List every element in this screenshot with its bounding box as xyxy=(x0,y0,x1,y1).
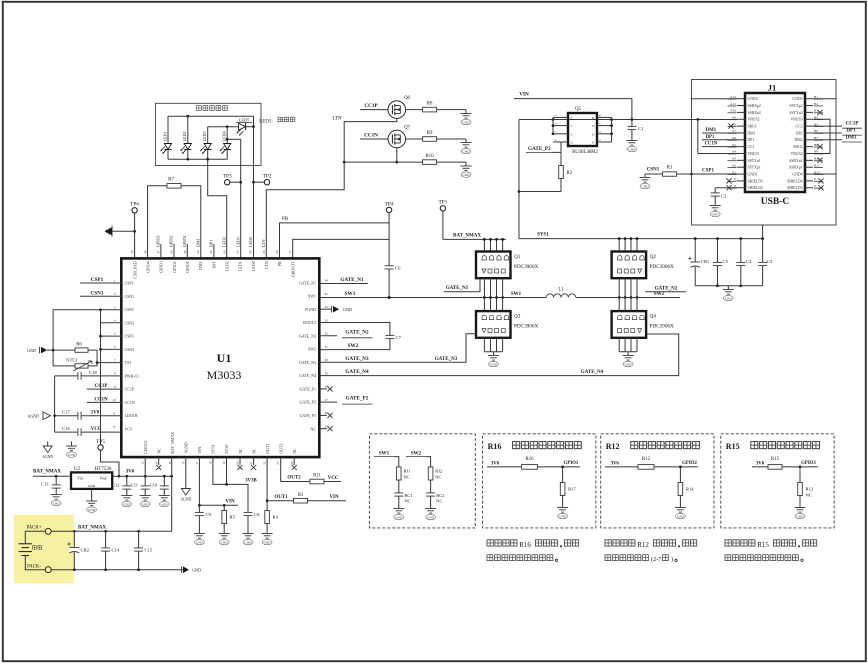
svg-text:NC: NC xyxy=(806,493,812,498)
svg-text:L1: L1 xyxy=(558,288,564,293)
svg-text:(2-7: (2-7 xyxy=(651,556,661,563)
svg-text:C18: C18 xyxy=(89,370,97,375)
svg-text:SSTXp2: SSTXp2 xyxy=(789,104,802,108)
svg-text:RC2: RC2 xyxy=(436,493,444,498)
svg-text:PACK-: PACK- xyxy=(27,564,41,569)
svg-text:17: 17 xyxy=(195,461,199,465)
svg-text:GND: GND xyxy=(343,307,352,312)
svg-text:NC: NC xyxy=(310,426,316,431)
svg-text:NC: NC xyxy=(435,474,441,479)
svg-text:44: 44 xyxy=(196,250,200,254)
svg-text:GND: GND xyxy=(559,514,567,518)
svg-text:0: 0 xyxy=(734,177,736,181)
svg-text:GND: GND xyxy=(712,212,720,216)
svg-text:DP1: DP1 xyxy=(706,135,715,140)
svg-text:SYS1: SYS1 xyxy=(211,444,216,453)
svg-text:11: 11 xyxy=(112,411,116,415)
svg-text:GPIO2: GPIO2 xyxy=(682,461,697,466)
svg-text:CSN2: CSN2 xyxy=(125,320,135,325)
svg-text:GPIO2: GPIO2 xyxy=(169,235,174,247)
svg-text:R11: R11 xyxy=(313,474,321,479)
svg-text:45: 45 xyxy=(183,250,187,254)
svg-text:DP1: DP1 xyxy=(846,129,856,134)
svg-text:GND: GND xyxy=(142,502,150,506)
svg-text:DP1: DP1 xyxy=(748,138,755,142)
svg-text:GATE_P3: GATE_P3 xyxy=(300,413,316,418)
svg-text:SSTXn1: SSTXn1 xyxy=(748,159,761,163)
svg-text:VIN: VIN xyxy=(197,447,202,454)
svg-text:32: 32 xyxy=(325,332,329,336)
svg-text:GND: GND xyxy=(463,120,471,124)
svg-text:OUT1: OUT1 xyxy=(265,444,270,454)
svg-text:GATE_N1: GATE_N1 xyxy=(299,280,316,285)
svg-text:NC: NC xyxy=(238,448,243,454)
svg-text:40: 40 xyxy=(249,250,253,254)
svg-text:GND: GND xyxy=(68,453,76,457)
svg-text:R13: R13 xyxy=(806,487,814,492)
svg-text:TS1: TS1 xyxy=(125,360,132,365)
svg-text:NC: NC xyxy=(292,448,297,454)
svg-text:VCC: VCC xyxy=(91,427,102,432)
svg-text:A2: A2 xyxy=(732,163,737,167)
svg-text:R12: R12 xyxy=(606,442,620,451)
svg-text:C7: C7 xyxy=(396,335,402,340)
svg-text:SW1: SW1 xyxy=(511,292,522,297)
svg-text:GATE_P2: GATE_P2 xyxy=(528,146,551,152)
svg-text:LDO3.6: LDO3.6 xyxy=(143,441,148,454)
svg-text:GATE_N1: GATE_N1 xyxy=(340,277,364,283)
svg-text:R7: R7 xyxy=(168,178,174,183)
svg-text:1V8: 1V8 xyxy=(91,411,100,416)
svg-text:GND: GND xyxy=(463,149,471,153)
svg-text:TP5: TP5 xyxy=(96,439,105,445)
svg-text:C6: C6 xyxy=(395,265,401,270)
svg-text:RC1: RC1 xyxy=(405,493,413,498)
svg-text:R17: R17 xyxy=(568,487,576,492)
svg-text:VBUS4: VBUS4 xyxy=(790,152,802,156)
svg-text:BAT_NMAX: BAT_NMAX xyxy=(453,234,481,239)
svg-text:OUT2: OUT2 xyxy=(287,476,301,481)
svg-text:GND: GND xyxy=(725,296,733,300)
svg-text:GATE_N3: GATE_N3 xyxy=(299,360,316,365)
svg-text:CSN3: CSN3 xyxy=(125,347,135,352)
svg-text:27: 27 xyxy=(325,398,329,402)
svg-text:B2: B2 xyxy=(814,102,818,106)
svg-text:SW2: SW2 xyxy=(654,292,665,297)
svg-text:CB1: CB1 xyxy=(701,259,710,264)
svg-text:BOOT2: BOOT2 xyxy=(303,320,316,325)
svg-text:GPIO4: GPIO4 xyxy=(145,261,150,272)
svg-text:GND: GND xyxy=(625,362,633,366)
svg-text:B11: B11 xyxy=(814,163,820,167)
svg-text:DM1: DM1 xyxy=(706,128,717,133)
svg-text:C13: C13 xyxy=(41,481,49,486)
svg-text:CSP1: CSP1 xyxy=(702,169,714,174)
svg-text:GND: GND xyxy=(196,540,204,544)
svg-text:GATE_N3: GATE_N3 xyxy=(345,356,369,362)
svg-text:Q4: Q4 xyxy=(650,314,657,320)
svg-text:NC: NC xyxy=(405,498,411,503)
svg-text:CSN1: CSN1 xyxy=(91,290,104,296)
svg-text:22: 22 xyxy=(263,461,267,465)
svg-text:DM1: DM1 xyxy=(195,238,200,247)
svg-text:GND: GND xyxy=(123,502,131,506)
svg-text:GPIO3: GPIO3 xyxy=(159,261,164,272)
svg-text:GND: GND xyxy=(427,515,435,519)
svg-text:GND: GND xyxy=(88,484,96,488)
svg-text:R15: R15 xyxy=(726,442,740,451)
svg-text:VIN: VIN xyxy=(329,495,339,500)
svg-text:DP1: DP1 xyxy=(211,261,216,268)
svg-text:LED2: LED2 xyxy=(221,237,226,247)
svg-text:41: 41 xyxy=(235,250,239,254)
svg-text:GND: GND xyxy=(677,514,685,518)
svg-text:42: 42 xyxy=(222,250,226,254)
svg-text:47: 47 xyxy=(156,250,160,254)
svg-text:C1: C1 xyxy=(638,126,644,131)
svg-text:Q2: Q2 xyxy=(650,254,657,260)
svg-text:R8: R8 xyxy=(427,102,433,107)
svg-text:Q7: Q7 xyxy=(404,125,410,130)
svg-text:LED2: LED2 xyxy=(182,131,187,141)
svg-text:GND4: GND4 xyxy=(792,172,802,176)
svg-text:Q5: Q5 xyxy=(575,107,582,112)
svg-text:C5: C5 xyxy=(723,259,729,264)
svg-text:CSP3: CSP3 xyxy=(125,334,134,339)
svg-text:DM1: DM1 xyxy=(198,261,203,269)
svg-text:CSN1: CSN1 xyxy=(125,294,135,299)
svg-text:A9: A9 xyxy=(732,115,737,119)
svg-text:U2: U2 xyxy=(74,467,81,472)
svg-text:46: 46 xyxy=(170,250,174,254)
svg-text:R12: R12 xyxy=(637,541,649,549)
svg-text:RJ1: RJ1 xyxy=(404,468,411,473)
svg-text:DM1: DM1 xyxy=(748,131,756,135)
svg-text:BAT_NMAX: BAT_NMAX xyxy=(78,525,106,530)
svg-text:49: 49 xyxy=(130,250,134,254)
svg-text:SBU2: SBU2 xyxy=(793,145,802,149)
svg-text:Q1: Q1 xyxy=(514,254,521,260)
svg-text:C11: C11 xyxy=(131,483,138,488)
svg-text:GND: GND xyxy=(395,515,403,519)
svg-text:CSB_PAD: CSB_PAD xyxy=(132,261,137,278)
svg-text:CSN1: CSN1 xyxy=(647,167,660,172)
svg-text:GATE_N4: GATE_N4 xyxy=(345,369,369,375)
svg-text:GPIO3: GPIO3 xyxy=(156,235,161,247)
svg-text:PDC3906X: PDC3906X xyxy=(514,264,538,270)
svg-text:R15: R15 xyxy=(757,541,769,549)
svg-text:CC1P: CC1P xyxy=(125,387,135,392)
svg-text:CC1P: CC1P xyxy=(95,384,108,389)
svg-text:U1: U1 xyxy=(217,351,232,365)
svg-text:GND: GND xyxy=(642,184,650,188)
svg-text:VBUS2: VBUS2 xyxy=(748,118,760,122)
svg-text:GND: GND xyxy=(797,514,805,518)
svg-text:SHIELD1: SHIELD1 xyxy=(748,179,763,183)
svg-text:GND: GND xyxy=(192,568,201,573)
svg-text:CC1P: CC1P xyxy=(846,122,859,127)
svg-text:SSTXp1: SSTXp1 xyxy=(748,166,761,170)
svg-text:LED4: LED4 xyxy=(222,131,227,141)
svg-text:SBU1: SBU1 xyxy=(748,125,757,129)
svg-text:LED2: LED2 xyxy=(224,261,229,271)
svg-text:12: 12 xyxy=(112,425,116,429)
svg-text:CC2: CC2 xyxy=(796,125,803,129)
svg-text:29: 29 xyxy=(325,371,329,375)
svg-text:R16: R16 xyxy=(519,541,531,549)
svg-text:HT7536: HT7536 xyxy=(95,467,112,472)
svg-text:AGND: AGND xyxy=(184,442,189,454)
svg-text:CC1N: CC1N xyxy=(364,133,378,139)
svg-text:R1: R1 xyxy=(667,166,673,171)
svg-text:34: 34 xyxy=(325,305,329,309)
svg-text:SYS2: SYS2 xyxy=(224,444,229,453)
svg-text:RJ2: RJ2 xyxy=(435,468,442,473)
svg-text:14: 14 xyxy=(154,461,158,465)
svg-text:43: 43 xyxy=(209,250,213,254)
svg-text:A3: A3 xyxy=(732,157,737,161)
svg-text:3V6: 3V6 xyxy=(756,461,765,466)
svg-text:GATE_N4: GATE_N4 xyxy=(299,373,316,378)
svg-text:VBUS3: VBUS3 xyxy=(790,118,802,122)
svg-text:A11: A11 xyxy=(730,102,736,106)
svg-text:23: 23 xyxy=(276,461,280,465)
svg-text:R10: R10 xyxy=(426,154,435,159)
svg-text:OUT2: OUT2 xyxy=(278,444,283,454)
svg-text:PDC3906X: PDC3906X xyxy=(650,324,674,330)
svg-text:Vin: Vin xyxy=(77,477,83,481)
svg-text:PDC3906X: PDC3906X xyxy=(650,264,674,270)
svg-text:NTC1: NTC1 xyxy=(66,357,78,362)
svg-text:GND: GND xyxy=(221,540,229,544)
svg-text:DM1: DM1 xyxy=(846,135,857,140)
svg-text:GND3: GND3 xyxy=(792,97,802,101)
svg-text:): ) xyxy=(671,556,673,563)
svg-text:SSRXp2: SSRXp2 xyxy=(748,104,761,108)
svg-text:CSP1: CSP1 xyxy=(91,277,104,283)
svg-text:3V6: 3V6 xyxy=(611,461,620,466)
svg-text:48: 48 xyxy=(143,250,147,254)
svg-text:LED3: LED3 xyxy=(202,131,207,141)
svg-text:LED5:: LED5: xyxy=(259,120,273,125)
svg-text:SW2: SW2 xyxy=(348,343,359,349)
svg-text:PACK+: PACK+ xyxy=(26,525,41,530)
svg-text:C14: C14 xyxy=(112,548,120,553)
svg-text:SSRXn1: SSRXn1 xyxy=(789,159,802,163)
svg-text:DP2: DP2 xyxy=(796,131,803,135)
svg-text:24: 24 xyxy=(290,461,294,465)
svg-text:C10: C10 xyxy=(150,483,158,488)
svg-text:LED5: LED5 xyxy=(239,118,251,123)
svg-text:GPIO1: GPIO1 xyxy=(185,261,190,272)
svg-text:S: S xyxy=(571,124,573,128)
svg-text:USB-C: USB-C xyxy=(761,197,790,207)
svg-text:GPIO2: GPIO2 xyxy=(172,261,177,272)
svg-text:OUT1: OUT1 xyxy=(274,495,288,500)
svg-text:LED1: LED1 xyxy=(235,237,240,247)
svg-text:16: 16 xyxy=(181,461,185,465)
svg-text:AGND: AGND xyxy=(180,498,191,502)
svg-text:SW2: SW2 xyxy=(308,347,316,352)
svg-text:R4: R4 xyxy=(273,515,279,520)
svg-text:CC1N: CC1N xyxy=(125,400,135,405)
svg-text:S: S xyxy=(571,132,573,136)
svg-text:LED0: LED0 xyxy=(248,237,253,247)
svg-text:GND: GND xyxy=(628,147,636,151)
svg-text:LTN: LTN xyxy=(332,117,342,122)
svg-text:Q6: Q6 xyxy=(404,96,410,101)
svg-text:0: 0 xyxy=(814,177,816,181)
svg-text:AGND: AGND xyxy=(42,455,53,459)
svg-text:R14: R14 xyxy=(686,487,694,492)
svg-text:C15: C15 xyxy=(145,548,153,553)
svg-text:37: 37 xyxy=(288,250,292,254)
svg-text:GND: GND xyxy=(88,508,96,512)
svg-text:GND: GND xyxy=(463,173,471,177)
svg-text:TP1: TP1 xyxy=(438,200,447,206)
svg-text:GND1: GND1 xyxy=(748,172,758,176)
svg-text:SSRXp1: SSRXp1 xyxy=(789,166,802,170)
svg-text:PB: PB xyxy=(282,217,289,222)
svg-text:33: 33 xyxy=(325,318,329,322)
svg-text:SW1: SW1 xyxy=(308,294,316,299)
svg-text:0: 0 xyxy=(814,184,816,188)
svg-text:GND: GND xyxy=(490,362,498,366)
svg-text:VIN: VIN xyxy=(225,500,235,505)
svg-text:R2: R2 xyxy=(567,171,573,176)
svg-text:GATE_P2: GATE_P2 xyxy=(346,396,369,402)
svg-text:LED1: LED1 xyxy=(162,131,167,141)
svg-text:CSP2: CSP2 xyxy=(125,307,134,312)
svg-text:PDC3906X: PDC3906X xyxy=(514,324,538,330)
svg-text:VIN: VIN xyxy=(519,91,529,97)
svg-text:NC: NC xyxy=(436,498,442,503)
svg-text:R5: R5 xyxy=(230,515,236,520)
svg-text:13: 13 xyxy=(141,461,145,465)
svg-text:SW1: SW1 xyxy=(345,291,356,297)
svg-text:C8: C8 xyxy=(254,512,260,517)
svg-text:NC: NC xyxy=(404,474,410,479)
svg-text:GPIO3: GPIO3 xyxy=(801,461,816,466)
svg-text:C4: C4 xyxy=(746,259,752,264)
svg-text:TP2: TP2 xyxy=(263,174,272,180)
svg-text:GATE_N1: GATE_N1 xyxy=(446,286,469,291)
svg-text:PWR-CC: PWR-CC xyxy=(125,373,141,378)
svg-text:C2: C2 xyxy=(721,193,727,198)
svg-text:NC: NC xyxy=(251,448,256,454)
svg-text:SHIELD4: SHIELD4 xyxy=(787,179,802,183)
svg-text:LDO1B: LDO1B xyxy=(125,413,138,418)
svg-text:36: 36 xyxy=(325,279,329,283)
svg-text:SSRXn2: SSRXn2 xyxy=(748,111,761,115)
svg-text:SHIELD2: SHIELD2 xyxy=(748,186,763,190)
svg-text:30: 30 xyxy=(325,358,329,362)
svg-text:TP4: TP4 xyxy=(385,201,394,207)
svg-text:20: 20 xyxy=(236,461,240,465)
svg-text:3V3B: 3V3B xyxy=(245,478,257,483)
svg-text:CC1P: CC1P xyxy=(364,103,378,109)
svg-text:GND: GND xyxy=(161,502,169,506)
svg-text:CB2: CB2 xyxy=(81,548,90,553)
svg-text:C17: C17 xyxy=(62,410,70,415)
svg-text:CSP1: CSP1 xyxy=(125,281,134,286)
svg-text:TP3: TP3 xyxy=(223,174,232,180)
svg-text:GND: GND xyxy=(245,540,253,544)
svg-text:GATE_N2: GATE_N2 xyxy=(655,286,678,291)
svg-text:AGND: AGND xyxy=(27,414,39,419)
svg-text:GATE_P1: GATE_P1 xyxy=(300,386,316,391)
svg-text:R16: R16 xyxy=(488,442,502,451)
svg-text:GATE_N4: GATE_N4 xyxy=(581,370,604,375)
svg-text:R15: R15 xyxy=(771,457,780,462)
svg-text:GPIO1: GPIO1 xyxy=(564,461,579,466)
svg-text:SW1: SW1 xyxy=(379,451,390,456)
svg-text:CC1N: CC1N xyxy=(94,397,108,402)
svg-text:S: S xyxy=(571,116,573,120)
svg-text:GND: GND xyxy=(264,540,272,544)
svg-text:TP6: TP6 xyxy=(130,202,139,208)
svg-text:35: 35 xyxy=(325,292,329,296)
svg-text:DP1: DP1 xyxy=(209,240,214,247)
svg-text:CC1: CC1 xyxy=(748,145,755,149)
svg-text:M3033: M3033 xyxy=(207,368,242,382)
svg-text:Vout: Vout xyxy=(99,477,107,481)
svg-text:GATE_N3: GATE_N3 xyxy=(435,357,458,362)
svg-text:C16: C16 xyxy=(62,426,70,431)
svg-text:19: 19 xyxy=(222,461,226,465)
svg-text:21: 21 xyxy=(249,461,253,465)
svg-text:SYS1: SYS1 xyxy=(537,233,549,238)
svg-text:GATE_N2: GATE_N2 xyxy=(299,333,316,338)
svg-text:BAT_NMAX: BAT_NMAX xyxy=(33,470,61,475)
svg-text:R16: R16 xyxy=(526,457,535,462)
svg-text:DM2: DM2 xyxy=(794,138,802,142)
svg-text:GND2: GND2 xyxy=(748,97,758,101)
svg-text:Q3: Q3 xyxy=(514,314,521,320)
svg-text:GND: GND xyxy=(27,348,36,353)
svg-text:GATE_N2: GATE_N2 xyxy=(345,329,369,335)
svg-text:VCC: VCC xyxy=(125,426,134,431)
svg-text:SHIELD3: SHIELD3 xyxy=(787,186,802,190)
svg-text:RU30L40M2: RU30L40M2 xyxy=(572,150,598,155)
svg-text:R6: R6 xyxy=(76,343,82,348)
svg-text:39: 39 xyxy=(262,250,266,254)
svg-text:PB: PB xyxy=(277,261,282,266)
svg-text:LED0: LED0 xyxy=(251,261,256,271)
svg-text:3V6: 3V6 xyxy=(126,470,135,475)
svg-text:LTN: LTN xyxy=(261,239,266,247)
svg-text:GPIO1: GPIO1 xyxy=(182,235,187,247)
svg-text:GND: GND xyxy=(53,501,61,505)
svg-text:R3: R3 xyxy=(298,493,304,498)
svg-text:R12: R12 xyxy=(642,457,651,462)
svg-text:BAT_NMAX: BAT_NMAX xyxy=(170,432,175,454)
svg-text:18: 18 xyxy=(208,461,212,465)
svg-text:LED1: LED1 xyxy=(238,261,243,271)
svg-text:CC1N: CC1N xyxy=(705,142,718,147)
svg-text:C3: C3 xyxy=(767,259,773,264)
svg-text:J1: J1 xyxy=(768,83,777,93)
svg-text:38: 38 xyxy=(275,250,279,254)
svg-text:VBUS1: VBUS1 xyxy=(748,152,760,156)
svg-text:GBOOT1: GBOOT1 xyxy=(290,261,295,277)
svg-text:10: 10 xyxy=(112,398,116,402)
svg-text:NC: NC xyxy=(156,448,161,454)
svg-text:LTN: LTN xyxy=(264,261,269,269)
svg-text:3V6: 3V6 xyxy=(491,461,500,466)
svg-text:R9: R9 xyxy=(427,131,433,136)
svg-text:GATE_P2: GATE_P2 xyxy=(300,400,316,405)
